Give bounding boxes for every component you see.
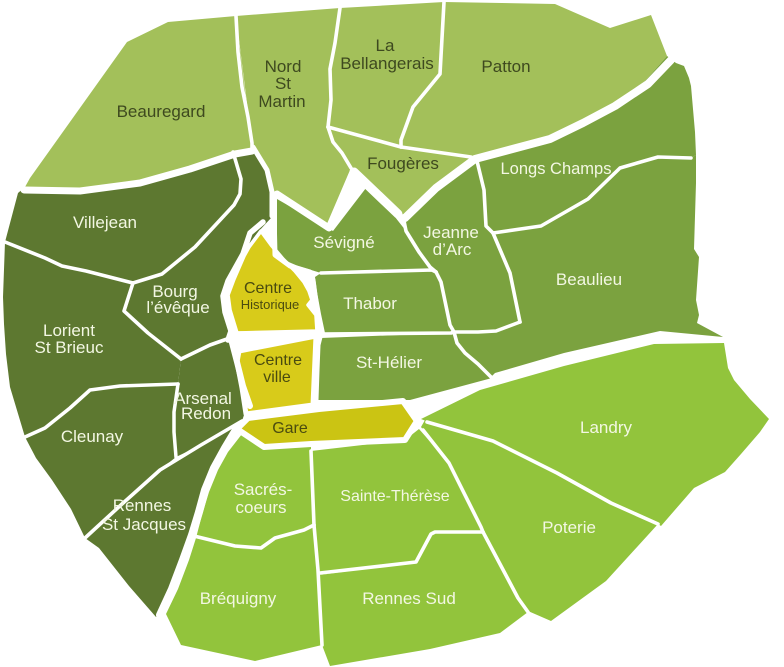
svg-text:coeurs: coeurs xyxy=(235,498,286,517)
svg-text:Thabor: Thabor xyxy=(343,294,397,313)
svg-text:Redon: Redon xyxy=(181,404,231,423)
svg-text:Cleunay: Cleunay xyxy=(61,427,124,446)
svg-text:La: La xyxy=(376,36,395,55)
svg-text:St Jacques: St Jacques xyxy=(102,515,186,534)
svg-text:Martin: Martin xyxy=(258,92,305,111)
svg-text:Poterie: Poterie xyxy=(542,518,596,537)
svg-text:Beaulieu: Beaulieu xyxy=(556,270,622,289)
svg-text:Sainte-Thérèse: Sainte-Thérèse xyxy=(340,488,449,505)
svg-text:St: St xyxy=(275,74,291,93)
svg-text:Longs Champs: Longs Champs xyxy=(501,160,612,178)
svg-text:l’évêque: l’évêque xyxy=(146,298,209,317)
svg-text:Historique: Historique xyxy=(241,297,300,312)
svg-text:Bellangerais: Bellangerais xyxy=(340,54,434,73)
svg-text:Landry: Landry xyxy=(580,418,632,437)
svg-text:Villejean: Villejean xyxy=(73,213,137,232)
svg-text:Centre: Centre xyxy=(244,280,292,297)
svg-text:ville: ville xyxy=(263,369,291,386)
svg-text:Patton: Patton xyxy=(481,57,530,76)
svg-text:d’Arc: d’Arc xyxy=(433,240,472,259)
svg-text:Rennes: Rennes xyxy=(113,496,172,515)
svg-text:Gare: Gare xyxy=(272,420,308,437)
svg-text:St-Hélier: St-Hélier xyxy=(356,353,422,372)
svg-text:Rennes Sud: Rennes Sud xyxy=(362,589,456,608)
svg-text:Fougères: Fougères xyxy=(367,154,439,173)
svg-text:Bréquigny: Bréquigny xyxy=(200,589,277,608)
svg-text:Beauregard: Beauregard xyxy=(117,102,206,121)
svg-text:Centre: Centre xyxy=(254,352,302,369)
svg-text:St Brieuc: St Brieuc xyxy=(35,338,104,357)
svg-text:Sévigné: Sévigné xyxy=(313,233,374,252)
svg-text:Sacrés-: Sacrés- xyxy=(234,480,293,499)
